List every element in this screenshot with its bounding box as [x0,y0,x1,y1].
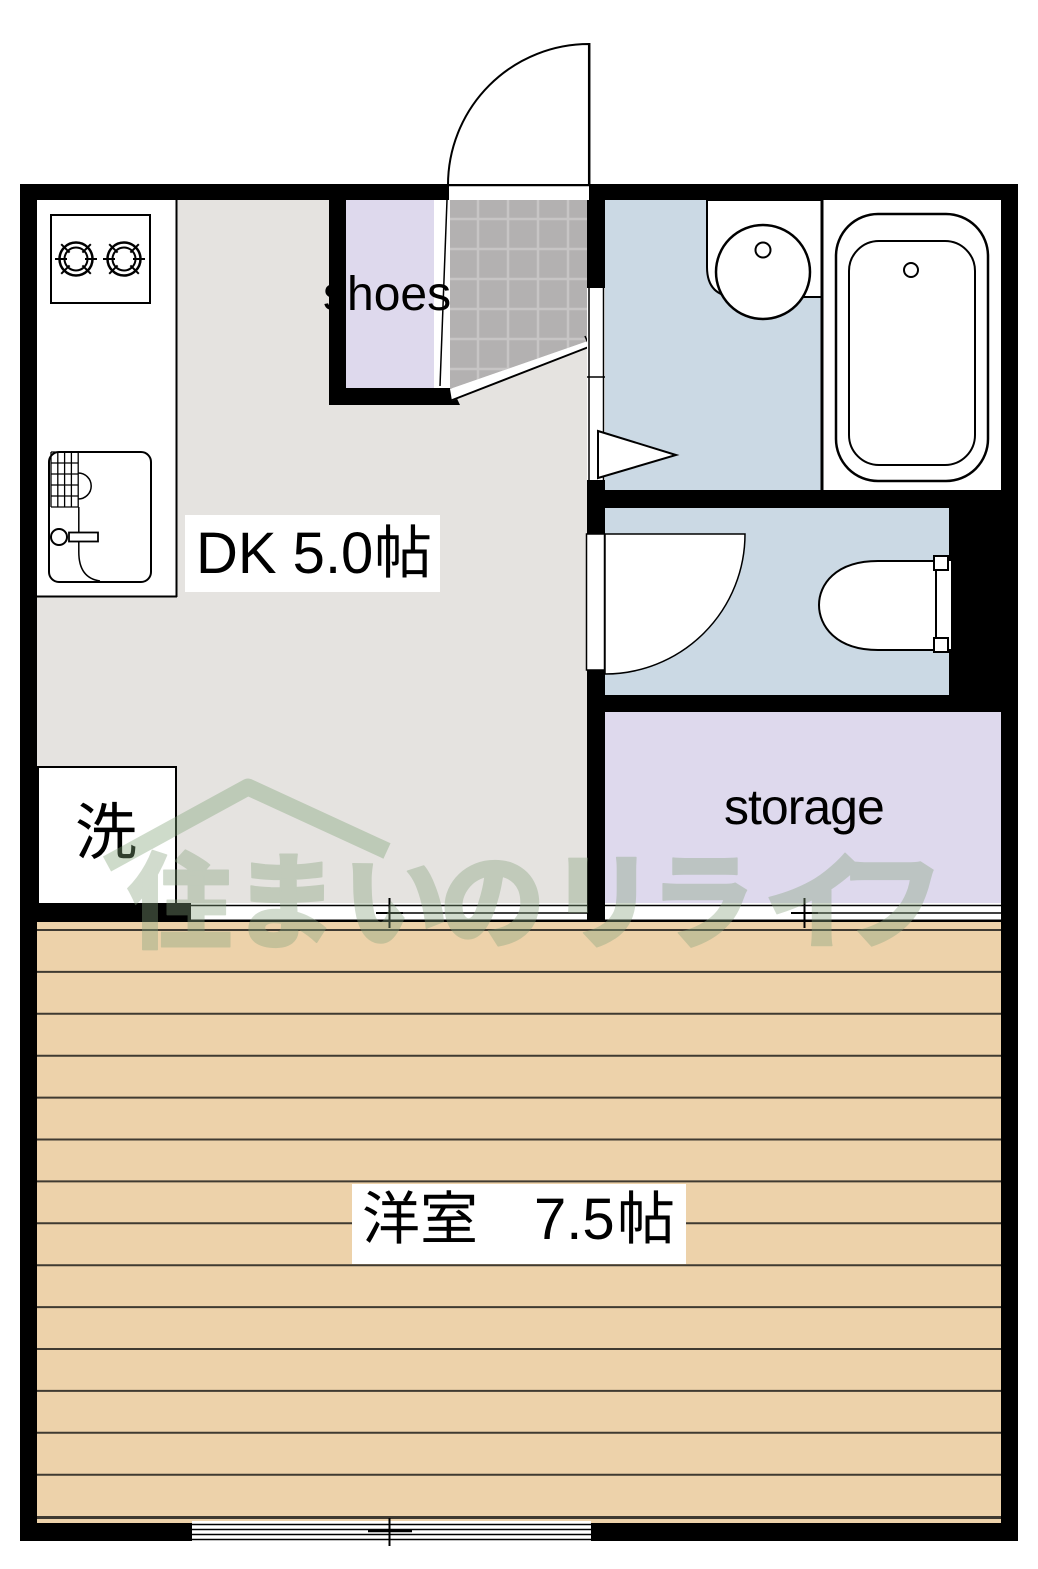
svg-text:shoes: shoes [323,268,451,321]
svg-text:DK 5.0: DK 5.0 [196,521,373,586]
svg-text:7.5: 7.5 [534,1187,615,1252]
svg-text:storage: storage [724,779,884,835]
